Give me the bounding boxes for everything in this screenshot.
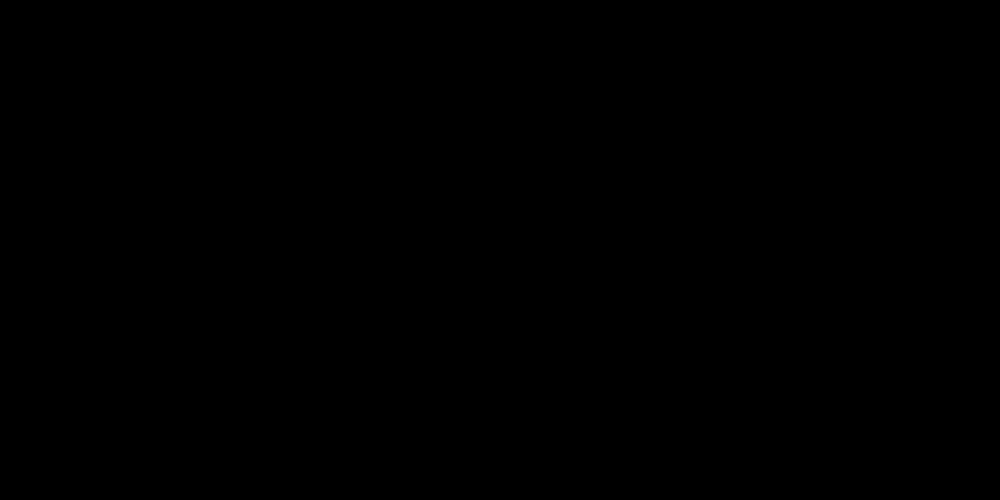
- floor-plan-canvas[interactable]: [0, 0, 1000, 500]
- plan-background: [0, 0, 1000, 500]
- cad-viewport: [0, 0, 1000, 500]
